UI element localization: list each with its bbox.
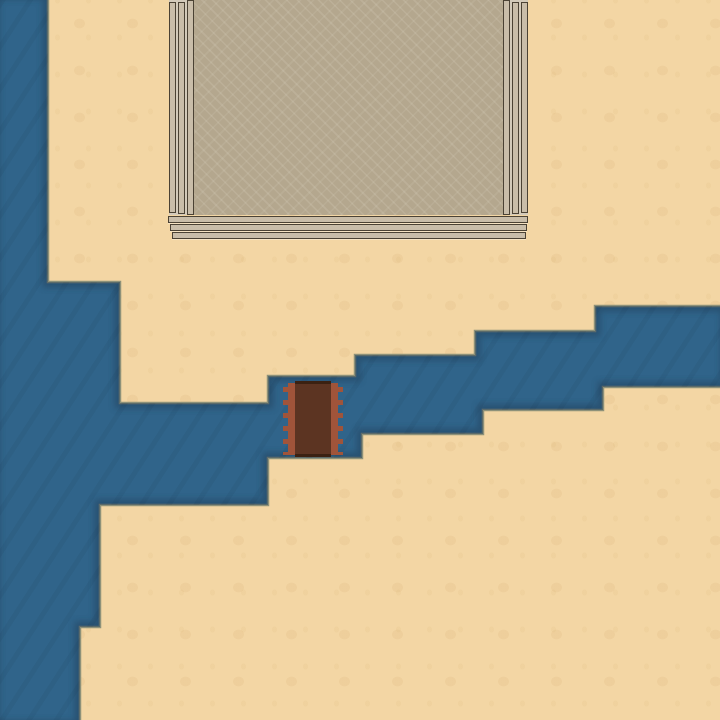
building-left-columns xyxy=(169,0,194,215)
pillar-bar xyxy=(178,2,185,214)
pillar-bar xyxy=(169,2,176,213)
building-right-columns xyxy=(503,0,528,215)
game-scene xyxy=(0,0,720,720)
pillar-bar xyxy=(503,0,510,215)
bridge-deck xyxy=(295,381,331,457)
bridge[interactable] xyxy=(283,381,343,457)
building-wall[interactable] xyxy=(193,0,503,215)
pillar-bar xyxy=(187,0,194,215)
building-step xyxy=(170,224,527,231)
pillar-bar xyxy=(521,2,528,213)
bridge-left-rail xyxy=(283,383,295,455)
pillar-bar xyxy=(512,2,519,214)
bridge-right-rail xyxy=(331,383,343,455)
building-step xyxy=(172,232,526,239)
building-step xyxy=(168,216,528,223)
